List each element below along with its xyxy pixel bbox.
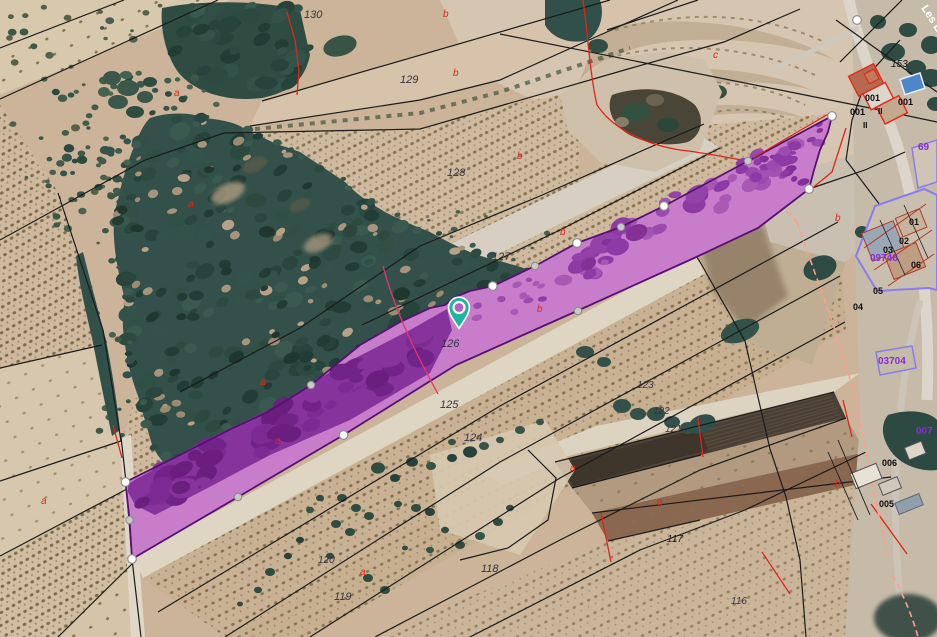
svg-text:120: 120 xyxy=(318,555,335,566)
svg-text:128: 128 xyxy=(447,167,466,179)
svg-text:122: 122 xyxy=(653,406,670,417)
svg-text:a: a xyxy=(360,567,366,578)
svg-text:124: 124 xyxy=(464,432,482,444)
svg-text:116: 116 xyxy=(731,596,747,607)
svg-text:119: 119 xyxy=(334,591,352,603)
svg-text:a: a xyxy=(275,436,281,447)
svg-text:09746: 09746 xyxy=(870,253,898,264)
svg-text:06: 06 xyxy=(911,260,921,270)
svg-text:129: 129 xyxy=(400,74,418,86)
svg-text:b: b xyxy=(443,9,449,20)
svg-text:b: b xyxy=(517,151,523,162)
svg-text:126: 126 xyxy=(441,338,460,350)
svg-text:121: 121 xyxy=(665,424,682,435)
svg-text:a: a xyxy=(188,199,194,210)
svg-text:c: c xyxy=(713,50,718,61)
svg-text:04: 04 xyxy=(853,302,863,312)
svg-text:125: 125 xyxy=(440,399,459,411)
svg-text:a: a xyxy=(657,497,663,508)
svg-text:a: a xyxy=(41,496,47,507)
svg-text:03704: 03704 xyxy=(878,356,906,367)
svg-text:a: a xyxy=(260,377,266,388)
svg-text:117: 117 xyxy=(667,534,683,545)
svg-text:a: a xyxy=(570,463,576,474)
svg-text:006: 006 xyxy=(882,458,897,468)
svg-text:005: 005 xyxy=(879,499,894,509)
svg-text:b: b xyxy=(453,68,459,79)
svg-text:130: 130 xyxy=(304,9,323,21)
svg-text:127: 127 xyxy=(492,251,511,263)
svg-text:b: b xyxy=(537,304,543,315)
svg-text:118: 118 xyxy=(481,563,499,575)
svg-text:69: 69 xyxy=(918,142,930,153)
svg-text:007: 007 xyxy=(916,426,933,437)
svg-text:b: b xyxy=(560,227,566,238)
svg-text:153: 153 xyxy=(891,59,908,70)
svg-text:05: 05 xyxy=(873,286,883,296)
svg-text:b: b xyxy=(835,479,841,490)
svg-text:a: a xyxy=(174,88,180,99)
svg-text:b: b xyxy=(835,213,841,224)
svg-text:02: 02 xyxy=(899,236,909,246)
svg-text:01: 01 xyxy=(909,217,919,227)
svg-text:001: 001 xyxy=(898,97,913,107)
svg-text:001: 001 xyxy=(850,107,865,117)
svg-text:123: 123 xyxy=(637,380,654,391)
svg-text:001: 001 xyxy=(865,93,880,103)
svg-text:II: II xyxy=(863,121,867,130)
svg-text:II: II xyxy=(878,107,882,116)
